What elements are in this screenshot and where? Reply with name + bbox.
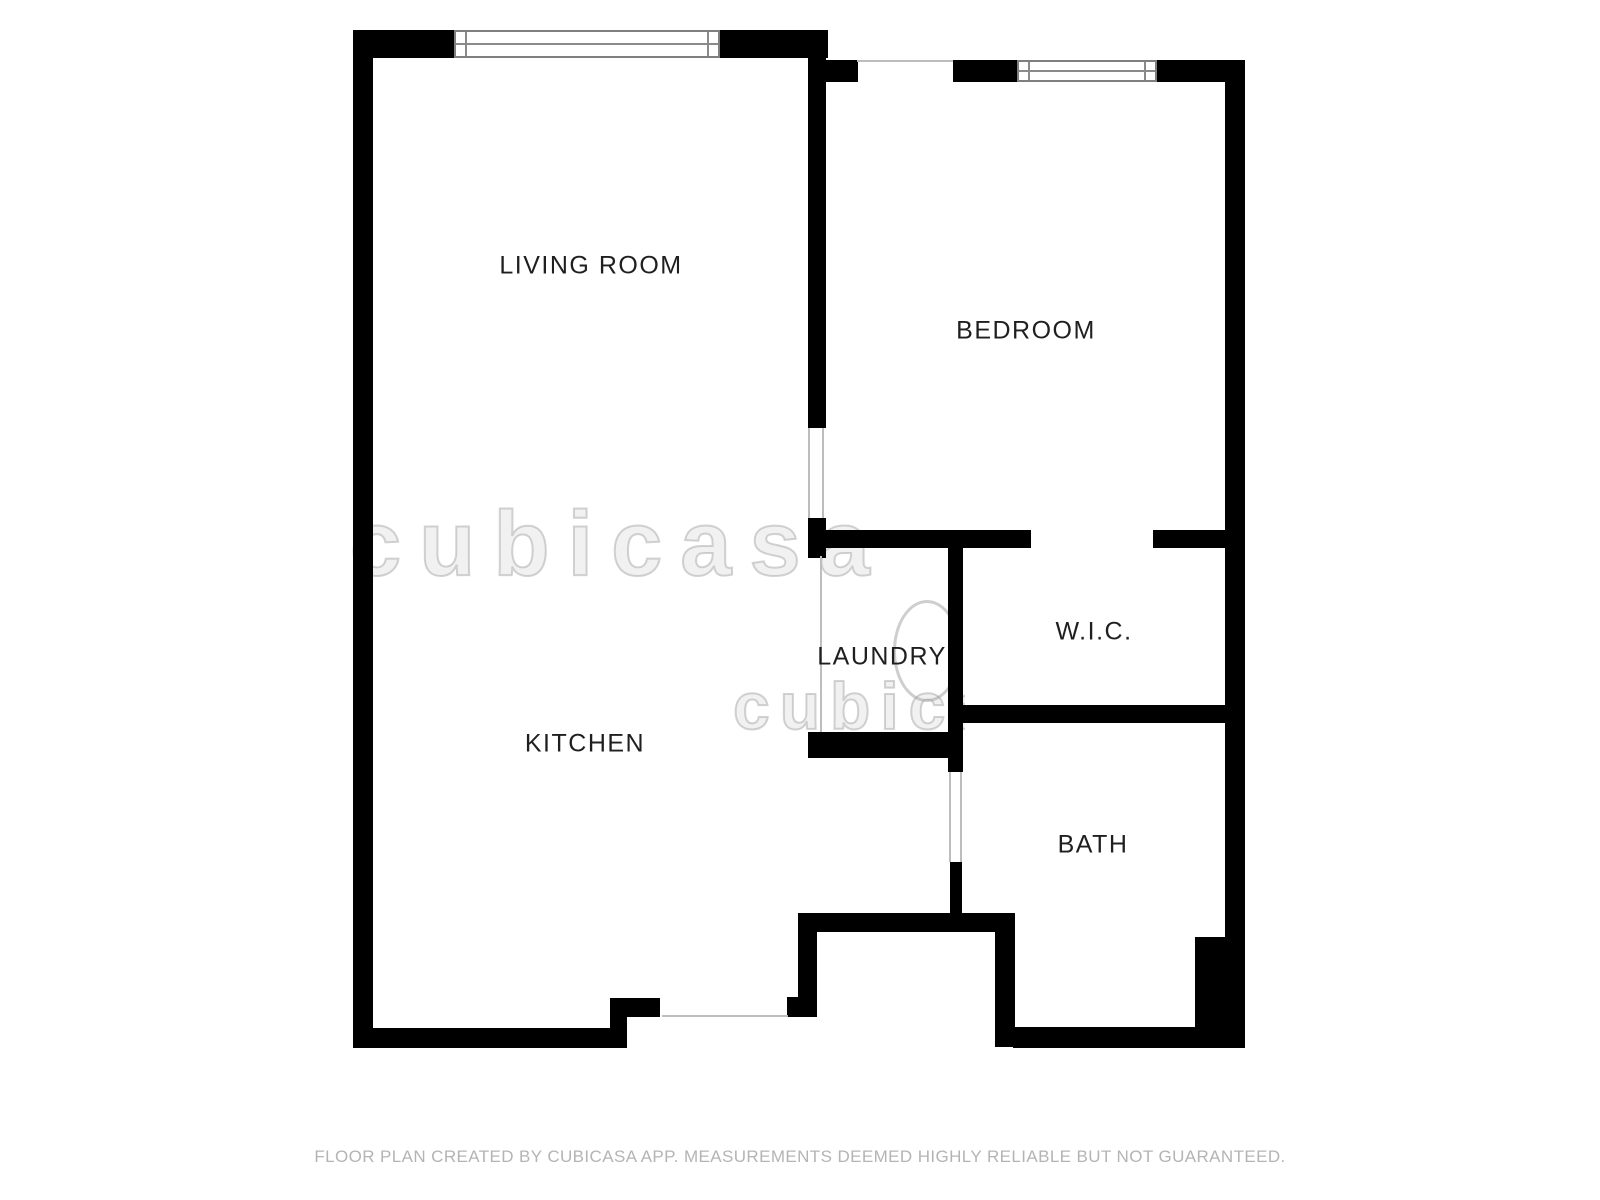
wall-bedroom-bottom-right xyxy=(1153,530,1225,548)
room-label-living-room: LIVING ROOM xyxy=(499,252,682,281)
wall-living-bedroom-divider xyxy=(808,30,826,428)
wall-bedroom-top-mid xyxy=(953,60,1017,82)
living-bedroom-doorway-jamb xyxy=(808,428,810,518)
bedroom-window xyxy=(1017,60,1157,82)
wall-entry-right-foot xyxy=(787,997,817,1017)
window-glazing-line xyxy=(1019,70,1155,72)
wall-bath-bottom xyxy=(1013,1027,1245,1048)
wall-left-exterior xyxy=(353,30,373,1048)
wall-hall-bath xyxy=(798,913,1013,932)
window-frame-post xyxy=(465,32,467,56)
bath-doorway-jamb xyxy=(960,772,962,862)
wall-right-exterior xyxy=(1225,60,1245,1048)
wall-bath-left-upper xyxy=(950,862,962,914)
wall-bedroom-bottom-left xyxy=(808,530,1031,548)
room-label-kitchen: KITCHEN xyxy=(525,730,645,759)
wall-laundry-bottom xyxy=(808,732,948,758)
window-frame-post xyxy=(707,32,709,56)
wall-bedroom-top-right xyxy=(1157,60,1225,82)
bath-doorway-jamb xyxy=(949,772,951,862)
living-room-window xyxy=(454,30,720,58)
bath-corner-block xyxy=(1195,937,1225,1027)
wall-entry-step-top xyxy=(610,998,660,1017)
entry-opening-line xyxy=(662,1015,788,1017)
wall-laundry-wic-divider xyxy=(948,530,963,772)
window-frame-post xyxy=(1028,62,1030,80)
room-label-bath: BATH xyxy=(1058,831,1129,860)
living-bedroom-doorway-jamb xyxy=(822,428,824,518)
footer-disclaimer: FLOOR PLAN CREATED BY CUBICASA APP. MEAS… xyxy=(0,1147,1600,1167)
window-glazing-line xyxy=(456,43,718,45)
wall-top-living-left xyxy=(353,30,454,58)
room-label-wic: W.I.C. xyxy=(1055,618,1132,647)
wall-bath-lower-left xyxy=(995,913,1015,1047)
wall-bottom-kitchen xyxy=(353,1028,627,1048)
room-label-laundry: LAUNDRY xyxy=(817,643,947,672)
floor-plan-canvas: cubicasa cubicasa LIVING R xyxy=(0,0,1600,1200)
wall-wic-bottom xyxy=(963,705,1225,723)
bedroom-top-opening-line xyxy=(857,60,953,62)
room-label-bedroom: BEDROOM xyxy=(956,317,1096,346)
window-frame-post xyxy=(1144,62,1146,80)
